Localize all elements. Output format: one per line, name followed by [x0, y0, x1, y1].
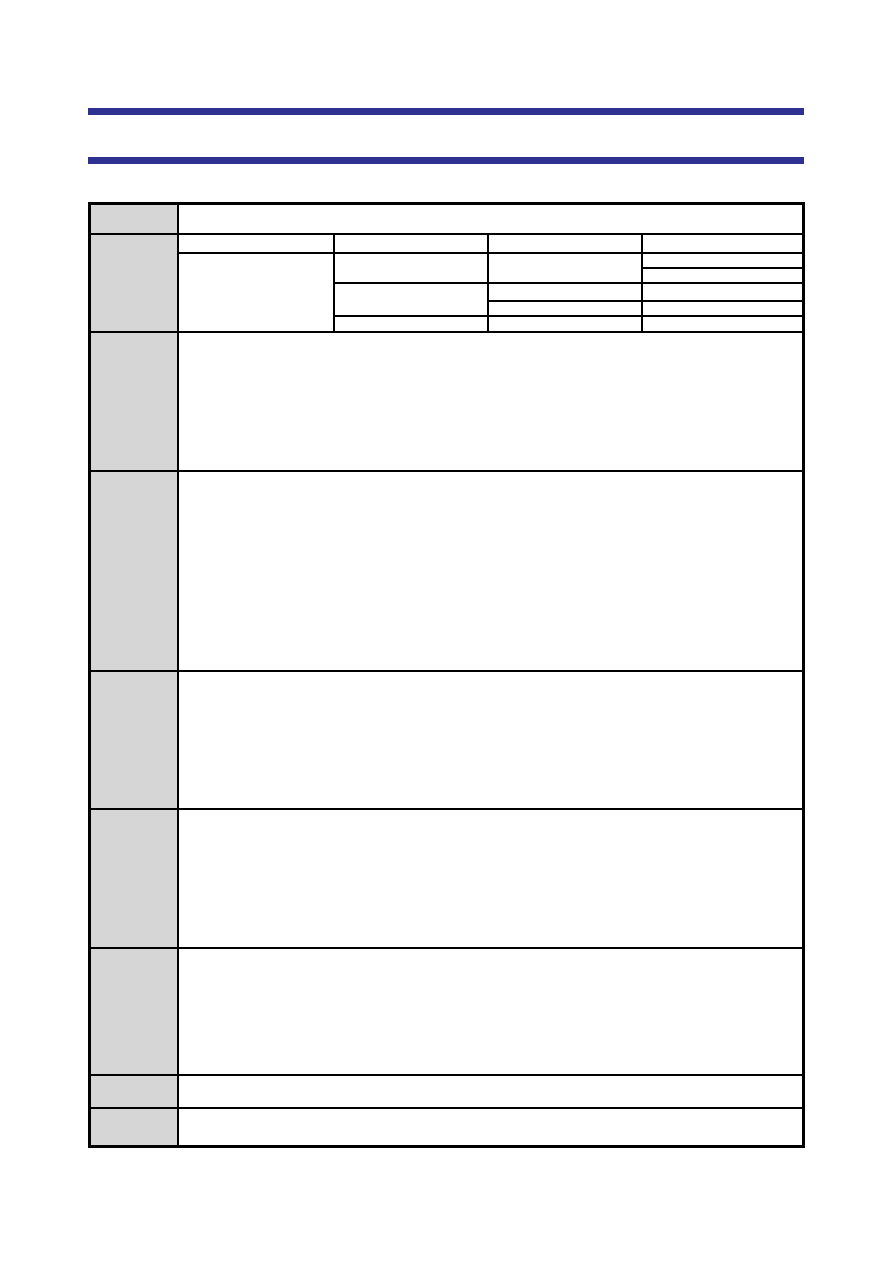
- nested-grid-cell: [334, 283, 488, 317]
- nested-grid-cell: [642, 301, 802, 316]
- spec-label-cell: [91, 471, 178, 671]
- spec-label-cell: [91, 809, 178, 948]
- nested-grid-cell: [179, 235, 334, 253]
- spec-content-cell: [178, 948, 802, 1075]
- nested-grid-cell: [642, 253, 802, 268]
- nested-grid-cell: [642, 283, 802, 302]
- nested-spec-grid: [179, 235, 802, 330]
- spec-label-cell: [91, 1075, 178, 1108]
- nested-grid-cell: [334, 316, 488, 331]
- spec-row-4: [91, 471, 802, 671]
- spec-content-cell: [178, 205, 802, 234]
- spec-row-9: [91, 1108, 802, 1145]
- nested-grid-cell: [642, 268, 802, 283]
- spec-content-cell: [178, 471, 802, 671]
- nested-grid-row: [179, 235, 802, 253]
- nested-grid-cell: [488, 316, 642, 331]
- spec-label-cell: [91, 1108, 178, 1145]
- spec-content-cell: [178, 1108, 802, 1145]
- spec-row-1: [91, 205, 802, 234]
- document-page: [0, 0, 893, 1262]
- spec-content-cell: [178, 332, 802, 471]
- nested-grid-cell: [642, 235, 802, 253]
- spec-label-cell: [91, 234, 178, 331]
- spec-table: [91, 205, 802, 1145]
- nested-grid-cell: [488, 253, 642, 282]
- spec-label-cell: [91, 332, 178, 471]
- chapter-rule-secondary: [88, 157, 804, 164]
- nested-grid-cell: [488, 301, 642, 316]
- spec-row-3: [91, 332, 802, 471]
- nested-grid-cell: [179, 253, 334, 331]
- spec-row-2: [91, 234, 802, 331]
- spec-content-cell: [178, 1075, 802, 1108]
- nested-grid-cell: [488, 235, 642, 253]
- spec-table-frame: [88, 202, 805, 1148]
- spec-label-cell: [91, 948, 178, 1075]
- spec-label-cell: [91, 205, 178, 234]
- nested-grid-row: [179, 253, 802, 268]
- spec-label-cell: [91, 671, 178, 809]
- spec-row-8: [91, 1075, 802, 1108]
- spec-content-cell: [178, 671, 802, 809]
- nested-grid-cell: [488, 283, 642, 302]
- nested-grid-cell: [334, 235, 488, 253]
- spec-row-7: [91, 948, 802, 1075]
- spec-content-cell: [178, 809, 802, 948]
- nested-grid-cell: [334, 253, 488, 282]
- chapter-rule-primary: [88, 108, 804, 115]
- nested-grid-host: [178, 234, 802, 331]
- spec-row-5: [91, 671, 802, 809]
- spec-row-6: [91, 809, 802, 948]
- nested-grid-cell: [642, 316, 802, 331]
